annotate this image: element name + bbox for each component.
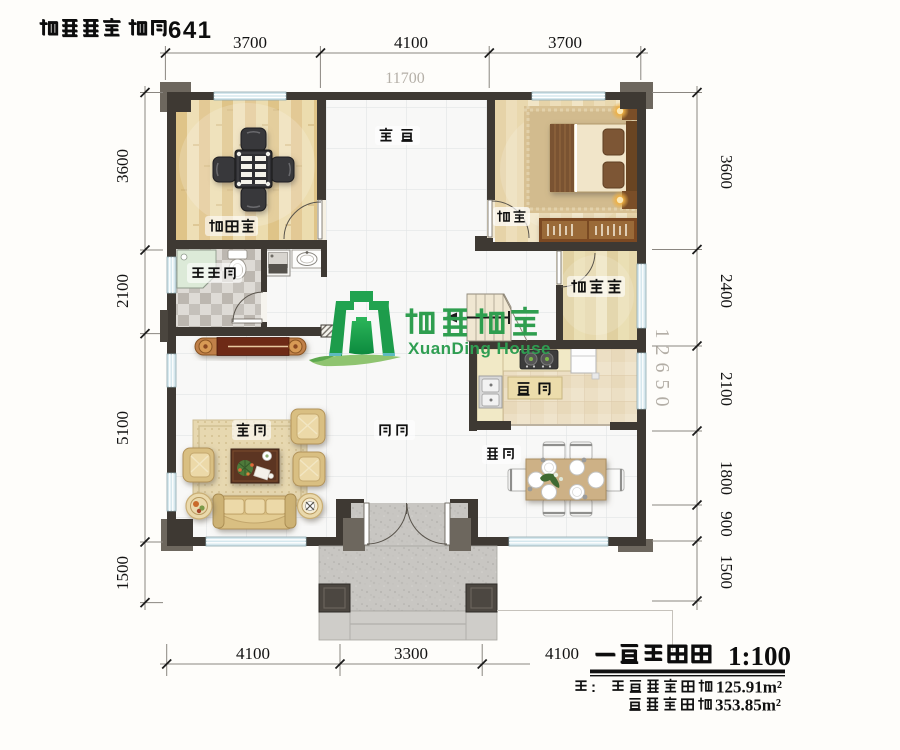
svg-text:4100: 4100 — [545, 644, 579, 663]
svg-text:4100: 4100 — [394, 33, 428, 52]
svg-text:641: 641 — [168, 17, 211, 44]
svg-text:11700: 11700 — [385, 70, 424, 87]
svg-text:1:100: 1:100 — [728, 641, 791, 671]
svg-text:900: 900 — [717, 511, 736, 537]
svg-text:1500: 1500 — [113, 556, 132, 590]
svg-text:2100: 2100 — [113, 274, 132, 308]
svg-text:XuanDing House: XuanDing House — [408, 339, 551, 358]
svg-text:12650: 12650 — [651, 329, 673, 414]
svg-text:1500: 1500 — [717, 555, 736, 589]
svg-text:3600: 3600 — [113, 149, 132, 183]
svg-text:3300: 3300 — [394, 644, 428, 663]
svg-text:1800: 1800 — [717, 461, 736, 495]
svg-text:125.91m²: 125.91m² — [716, 678, 782, 697]
svg-text:3700: 3700 — [548, 33, 582, 52]
svg-text:4100: 4100 — [236, 644, 270, 663]
svg-text:5100: 5100 — [113, 411, 132, 445]
svg-text:2100: 2100 — [717, 372, 736, 406]
svg-text::: : — [591, 679, 596, 696]
svg-text:353.85m²: 353.85m² — [715, 696, 781, 715]
svg-text:2400: 2400 — [717, 274, 736, 308]
svg-text:3700: 3700 — [233, 33, 267, 52]
svg-text:3600: 3600 — [717, 155, 736, 189]
